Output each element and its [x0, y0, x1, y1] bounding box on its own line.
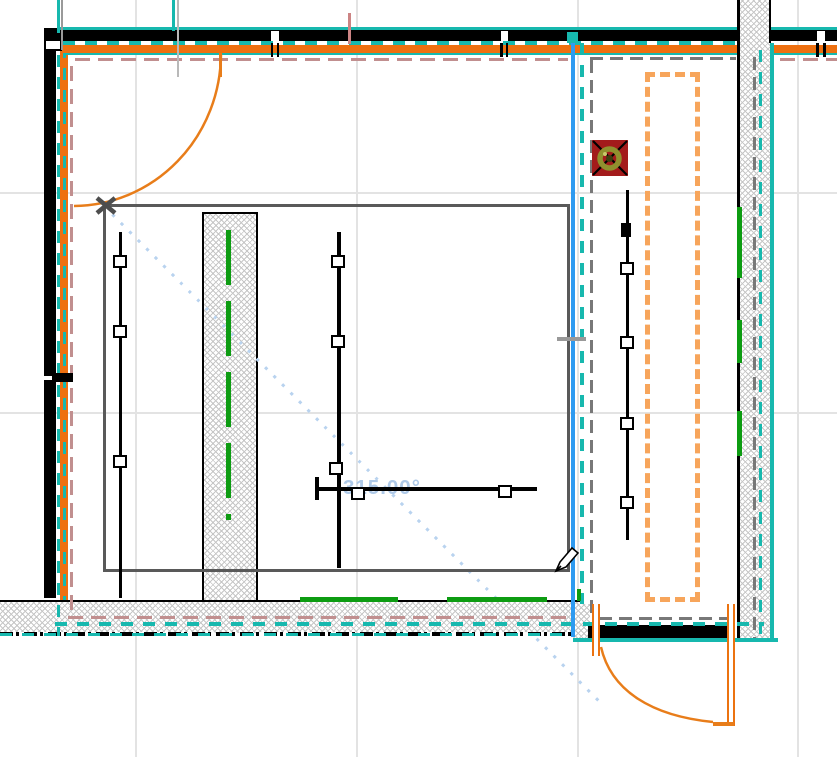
wiring-green-segment[interactable] [737, 320, 742, 363]
device-symbol[interactable] [113, 255, 127, 268]
door-leaf-tick[interactable] [219, 53, 222, 77]
device-symbol[interactable] [620, 496, 634, 509]
device-run-4[interactable] [626, 190, 630, 540]
left-wall-reference-dash [70, 66, 73, 618]
right-room-dashed-rect-right [753, 57, 756, 640]
device-run-3-endcap [315, 477, 319, 500]
device-symbol[interactable] [113, 325, 127, 338]
wiring-green-segment[interactable] [737, 411, 742, 456]
top-wall-joint-notch [817, 31, 825, 41]
grid-line-vertical [797, 0, 799, 757]
door-frame-left[interactable] [592, 604, 600, 656]
right-wall-selection-dash [759, 50, 763, 637]
right-room-dashed-rect-top [590, 57, 736, 60]
top-wall-selection-line2 [63, 53, 837, 56]
top-wall-joint-tick [271, 43, 274, 57]
wiring-green-column[interactable] [226, 230, 231, 520]
round-fixture-symbol[interactable] [592, 140, 628, 176]
bottom-wall-right-selection-dash [583, 622, 764, 626]
round-fixture-glyph [592, 140, 628, 176]
device-symbol[interactable] [331, 255, 345, 268]
device-symbol[interactable] [620, 417, 634, 430]
right-room-dashed-rect-bottom [599, 617, 735, 620]
left-wall-core[interactable] [44, 28, 56, 598]
device-symbol[interactable] [351, 487, 365, 500]
top-wall-joint-tick [506, 43, 509, 57]
selection-stub [57, 0, 60, 33]
bottom-wall-right-selection-line [573, 638, 778, 642]
wiring-green-bottom[interactable] [447, 597, 547, 602]
top-wall-insulation[interactable] [63, 45, 837, 53]
wall-joint-tick [557, 337, 586, 341]
bottom-wall-reference-dash [68, 616, 584, 619]
reference-stub [348, 13, 351, 44]
right-wall-edge-right [769, 0, 772, 43]
cad-canvas: 315.00° [0, 0, 837, 757]
top-wall-joint-notch [501, 31, 508, 41]
device-symbol-filled[interactable] [621, 223, 631, 237]
selection-handle [567, 32, 578, 43]
wiring-green-bottom[interactable] [300, 597, 398, 602]
door-swing-arc-bottom[interactable] [601, 647, 713, 722]
top-wall-reference-dash2 [780, 58, 837, 61]
left-wall-joint-notch [44, 376, 52, 380]
device-run-2[interactable] [337, 232, 341, 568]
top-wall-joint-tick [816, 43, 819, 57]
device-symbol[interactable] [329, 462, 343, 475]
top-wall-core[interactable] [46, 30, 837, 42]
door-swing-arc-top[interactable] [74, 54, 221, 206]
device-symbol[interactable] [331, 335, 345, 348]
left-wall-selection-dash2 [63, 46, 66, 600]
top-wall-reference-dash [75, 58, 568, 61]
top-wall-joint-tick [823, 43, 826, 57]
device-symbol[interactable] [620, 336, 634, 349]
guide-stub [61, 0, 64, 50]
grid-line-vertical [577, 0, 579, 757]
device-symbol[interactable] [113, 455, 127, 468]
cabinet-dashed-rect[interactable] [645, 72, 700, 602]
top-wall-joint-notch [271, 31, 279, 41]
door-leaf[interactable] [727, 604, 735, 726]
device-run-1[interactable] [119, 232, 123, 598]
bottom-wall-selection-dash2 [55, 622, 584, 626]
guide-stub [177, 0, 180, 77]
wiring-green-tick [577, 589, 581, 601]
device-symbol[interactable] [620, 262, 634, 275]
grid-line-horizontal [0, 192, 837, 194]
top-wall-joint-tick [277, 43, 280, 57]
wiring-green-segment[interactable] [737, 207, 742, 278]
door-leaf-foot[interactable] [713, 722, 734, 726]
top-wall-joint-tick [500, 43, 503, 57]
selection-stub [172, 0, 175, 31]
device-symbol[interactable] [498, 485, 512, 498]
bottom-wall-selection-dash [0, 633, 584, 636]
right-wall-selection-line [770, 43, 774, 641]
